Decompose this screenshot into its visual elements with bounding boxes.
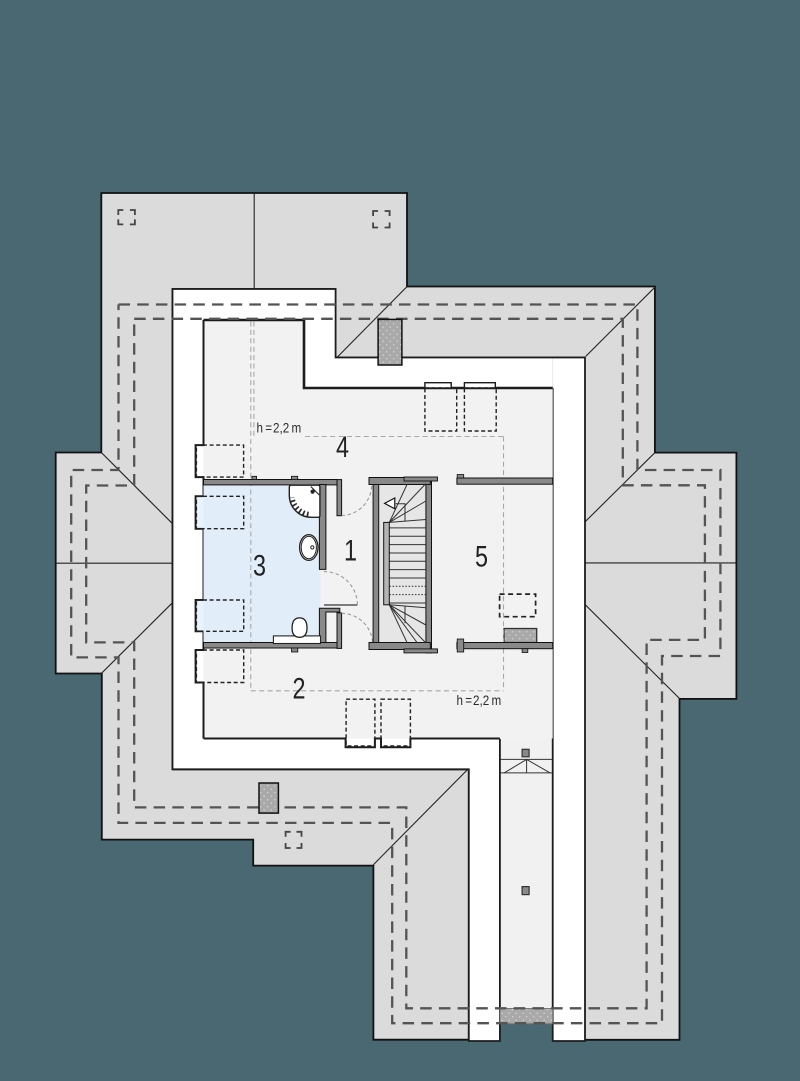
- svg-text:h = 2,2 m: h = 2,2 m: [457, 692, 502, 708]
- svg-text:2: 2: [292, 672, 305, 705]
- svg-text:1: 1: [344, 534, 357, 567]
- svg-text:h = 2,2 m: h = 2,2 m: [257, 419, 302, 435]
- svg-text:5: 5: [475, 540, 488, 573]
- svg-text:4: 4: [336, 430, 349, 463]
- svg-text:3: 3: [253, 549, 266, 582]
